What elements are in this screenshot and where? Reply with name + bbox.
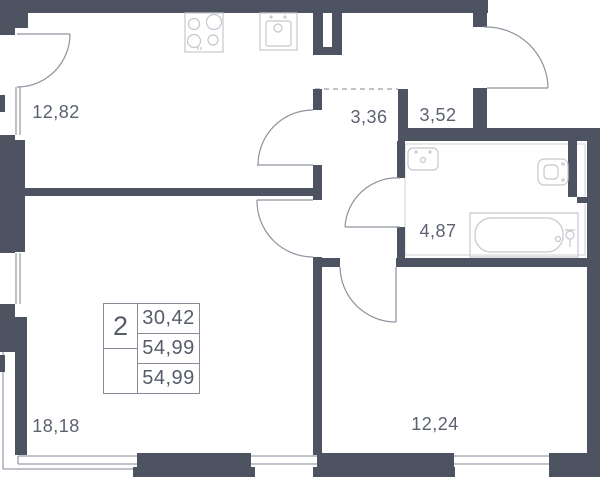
wall-pier-bottom-3 (549, 453, 600, 467)
wall-balcony-block-1 (133, 467, 255, 477)
wall-top (0, 0, 488, 13)
door-living-room (257, 200, 313, 257)
wall-bathroom-top (398, 128, 600, 141)
room-area-kitchen-living: 12,82 (11, 102, 101, 122)
floor-plan: 12,82 3,36 3,52 4,87 18,18 12,24 2 30,42… (0, 0, 600, 477)
bathtub-icon (470, 213, 578, 257)
wall-pier-bottom-1 (137, 453, 251, 467)
area-value-3: 54,99 (138, 363, 199, 393)
room-area-entry-hall: 3,52 (393, 105, 483, 125)
wall-left-middle (0, 135, 15, 253)
info-box-values-column: 30,42 54,99 54,99 (138, 304, 199, 393)
wall-stub-bedroom (322, 258, 340, 267)
room-area-bedroom: 12,24 (390, 414, 480, 434)
window-living (16, 253, 20, 304)
walls (0, 0, 600, 477)
wall-corridor-upper (313, 89, 322, 110)
wall-right (587, 140, 600, 455)
wall-pier-bottom-2 (317, 453, 454, 467)
wall-bathroom-left-upper (397, 141, 405, 178)
wall-bathroom-shaft-connector (577, 197, 587, 203)
wall-balcony-block-3 (549, 467, 600, 477)
stove-icon (185, 13, 223, 52)
door-kitchen (257, 110, 313, 165)
wall-left-middle-inner (15, 140, 25, 252)
window-band-bottom (18, 456, 600, 464)
wall-bathroom-shaft (568, 141, 577, 197)
wall-left-upper (0, 13, 15, 35)
room-area-bathroom: 4,87 (393, 221, 483, 241)
room-area-living-room: 18,18 (11, 416, 101, 436)
info-box: 2 30,42 54,99 54,99 (103, 303, 200, 394)
wall-interior-horizontal (15, 188, 322, 196)
door-balcony-kitchen (17, 34, 70, 87)
door-entrance (484, 27, 548, 88)
toilet-icon (538, 159, 568, 185)
wall-entry-pilaster (473, 13, 487, 27)
wall-shaft-bottom (313, 47, 342, 55)
rooms-count: 2 (104, 304, 137, 349)
area-value-1: 30,42 (138, 304, 199, 333)
wall-left-lower (0, 304, 15, 352)
area-value-2: 54,99 (138, 333, 199, 363)
wall-bathroom-bottom (396, 258, 600, 267)
washbasin-icon (408, 148, 438, 170)
wall-balcony-block-2 (313, 467, 455, 477)
door-bedroom (340, 267, 396, 322)
info-box-empty-cell (104, 349, 137, 393)
wall-stub-outer-1 (0, 95, 5, 112)
doors (17, 27, 548, 322)
door-bathroom (345, 178, 400, 227)
info-box-left-column: 2 (104, 304, 138, 393)
plan-drawing (0, 0, 600, 477)
wall-corridor-lower (313, 257, 322, 455)
kitchen-sink-icon (260, 13, 297, 50)
wall-stub-outer-2 (0, 355, 5, 372)
